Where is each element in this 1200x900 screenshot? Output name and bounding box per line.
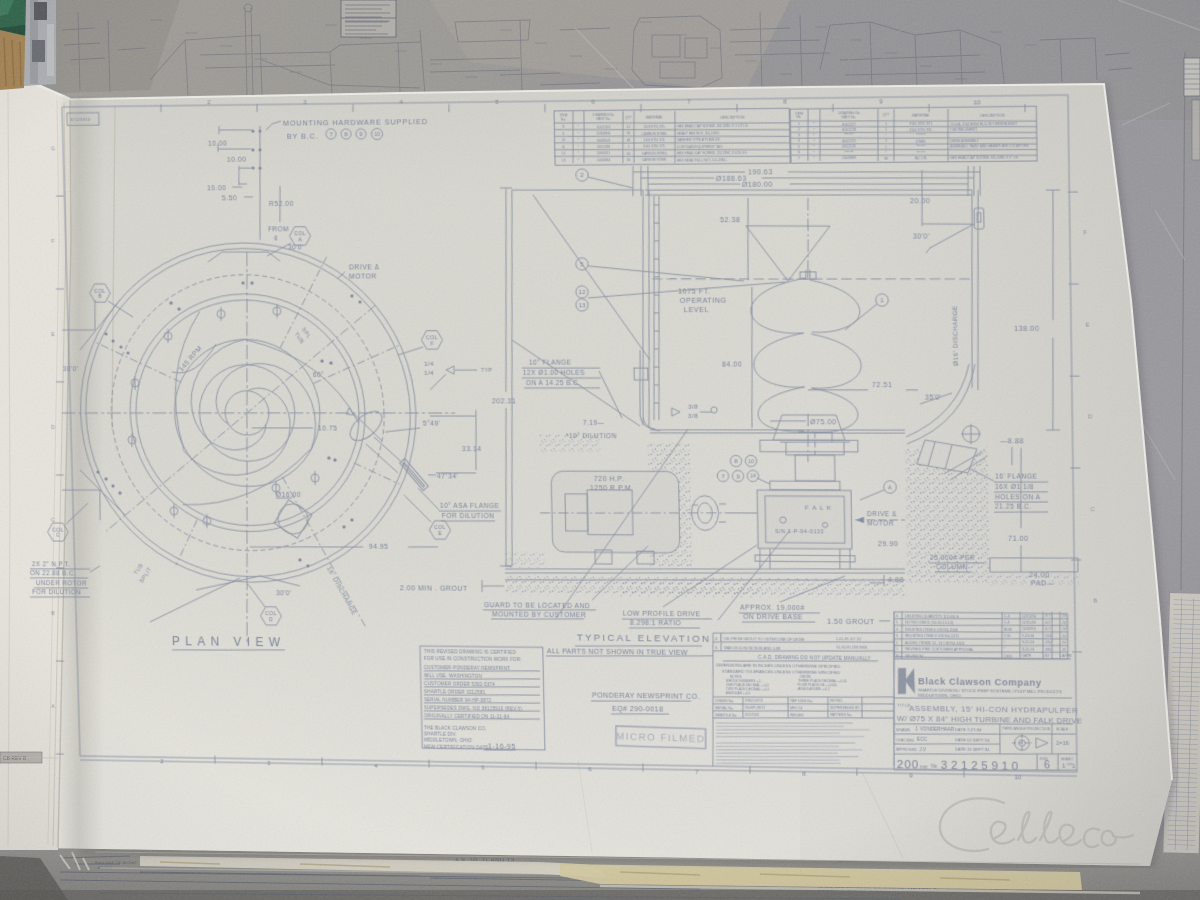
svg-text:9: 9	[879, 100, 883, 106]
svg-text:DRIVE ASSEMBLY.: DRIVE ASSEMBLY.	[950, 139, 980, 144]
svg-text:SUPERSEDED BY: SUPERSEDED BY	[830, 706, 861, 711]
svg-text:1009898: 1009898	[842, 156, 856, 160]
svg-text:9-23-94: 9-23-94	[1022, 634, 1035, 638]
svg-text:Ø16' DISCHARGE: Ø16' DISCHARGE	[952, 305, 960, 366]
svg-text:No.: No.	[796, 115, 801, 119]
svg-text:4002225: 4002225	[842, 139, 856, 143]
svg-text:WAS 28.10 NOW 28.80 AND 4.88: WAS 28.10 NOW 28.80 AND 4.88	[724, 646, 780, 651]
svg-text:10: 10	[374, 132, 380, 138]
svg-text:ADDED ITEMS 12, 13 CN#94-1301: ADDED ITEMS 12, 13 CN#94-1301	[905, 641, 965, 646]
svg-text:ASSEMBLY, PAINT AND NAMEPLATE: ASSEMBLY, PAINT AND NAMEPLATE LOCATIONS.	[950, 144, 1030, 149]
svg-text:12: 12	[562, 152, 566, 156]
svg-text:10.00: 10.00	[207, 185, 227, 192]
svg-text:5302-5374: 5302-5374	[745, 699, 763, 703]
svg-text:C: C	[1091, 507, 1095, 513]
svg-text:SERIAL No.: SERIAL No.	[715, 706, 734, 710]
svg-text:FOR DILUTION: FOR DILUTION	[32, 589, 81, 596]
svg-text:*: *	[578, 132, 580, 136]
svg-text:18-8 STN. STL: 18-8 STN. STL	[644, 138, 666, 142]
svg-text:1: 1	[885, 139, 887, 143]
svg-text:30'0': 30'0'	[288, 245, 304, 252]
svg-text:HOLES ON A: HOLES ON A	[995, 494, 1041, 502]
svg-text:TYPICAL ELEVATION: TYPICAL ELEVATION	[577, 633, 712, 646]
svg-text:I.M. FROM GROUT TO OUTER LINE: I.M. FROM GROUT TO OUTER LINE OF DRIVE	[724, 637, 805, 642]
svg-text:4002224: 4002224	[842, 145, 856, 149]
svg-text:3212581: 3212581	[745, 713, 760, 717]
svg-text:F: F	[51, 239, 55, 245]
svg-text:DRIVE &: DRIVE &	[349, 265, 380, 272]
svg-text:4: 4	[715, 636, 718, 641]
svg-text:1=16: 1=16	[1056, 741, 1069, 747]
svg-text:7.19—: 7.19—	[583, 420, 605, 427]
svg-text:12: 12	[626, 125, 630, 129]
svg-text:—8.88: —8.88	[1000, 438, 1024, 445]
svg-text:5: 5	[495, 100, 499, 106]
svg-text:6: 6	[798, 151, 800, 155]
svg-text:DESCRIPTION: DESCRIPTION	[720, 115, 745, 119]
svg-text:CUSTOMER ORDER 5302-5374: CUSTOMER ORDER 5302-5374	[424, 681, 496, 687]
svg-text:9: 9	[562, 132, 564, 136]
svg-text:CUSTOMER-PONDERAY NEWSPRINT: CUSTOMER-PONDERAY NEWSPRINT	[424, 665, 510, 671]
svg-text:5: 5	[896, 621, 898, 625]
svg-text:HEX HEAD CAP SCREW- 3/4-10NC X: HEX HEAD CAP SCREW- 3/4-10NC X 5" LG.	[950, 156, 1019, 161]
svg-text:11: 11	[562, 145, 566, 149]
svg-text:*: *	[813, 151, 815, 155]
svg-text:CARBON STEEL: CARBON STEEL	[642, 151, 668, 155]
svg-text:1: 1	[885, 145, 887, 149]
svg-text:ON A 14.25 B.C.: ON A 14.25 B.C.	[526, 380, 581, 387]
svg-text:2: 2	[896, 641, 898, 645]
svg-text:INC OR.: INC OR.	[915, 156, 928, 160]
svg-text:Ø75.00: Ø75.00	[810, 419, 837, 426]
svg-text:SHARTLE ORDER 3212581: SHARTLE ORDER 3212581	[424, 689, 486, 695]
svg-text:6: 6	[1044, 760, 1051, 771]
svg-text:11/20/94: 11/20/94	[1022, 627, 1036, 631]
svg-text:A: A	[51, 704, 55, 710]
svg-text:JLT: JLT	[1045, 627, 1051, 631]
svg-text:REF DWG No.: REF DWG No.	[790, 699, 813, 703]
svg-text:9: 9	[359, 132, 363, 138]
svg-text:ON DRIVE BASE: ON DRIVE BASE	[743, 614, 803, 622]
svg-text:8: 8	[562, 125, 564, 129]
svg-text:36: 36	[626, 131, 630, 135]
svg-text:10: 10	[973, 100, 981, 106]
svg-text:SCALE: SCALE	[1056, 727, 1069, 731]
svg-text:*******: *******	[916, 151, 926, 155]
svg-text:REVISED PER CUSTOMER APPROVAL: REVISED PER CUSTOMER APPROVAL	[905, 647, 974, 652]
svg-text:18-8 STN. STL: 18-8 STN. STL	[643, 125, 665, 129]
svg-text:32125910: 32125910	[70, 117, 91, 122]
svg-text:B: B	[98, 294, 102, 300]
svg-text:No.: No.	[931, 764, 938, 769]
svg-text:ALL PARTS NOT SHOWN IN TRUE VI: ALL PARTS NOT SHOWN IN TRUE VIEW	[547, 648, 688, 657]
svg-text:PATTERN No: PATTERN No	[830, 713, 852, 717]
svg-text:20.00: 20.00	[910, 198, 931, 205]
svg-text:21.25 B.C.: 21.25 B.C.	[995, 504, 1032, 511]
svg-text:94.95: 94.95	[369, 544, 389, 551]
svg-text:MICRO FILMED: MICRO FILMED	[616, 731, 705, 745]
svg-text:DELETED ITEM 6 CN#94-1508: DELETED ITEM 6 CN#94-1508	[905, 627, 958, 632]
svg-text:MIDDLETOWN, OHIO: MIDDLETOWN, OHIO	[424, 737, 473, 743]
svg-text:75 DIA. X 84 HIGH HI-CON TURBI: 75 DIA. X 84 HIGH HI-CON TURBINE ASSY.	[950, 121, 1018, 126]
svg-text:C10: C10	[1004, 634, 1011, 638]
svg-text:*: *	[885, 134, 887, 138]
svg-text:JV: JV	[1062, 614, 1067, 618]
svg-text:FOR USE IN CONSTRUCTION WORK F: FOR USE IN CONSTRUCTION WORK FOR:	[424, 656, 522, 662]
svg-text:*: *	[813, 128, 815, 132]
svg-text:60°: 60°	[313, 371, 325, 379]
svg-text:*******: *******	[844, 151, 854, 155]
svg-text:PLAN VIEW: PLAN VIEW	[172, 634, 286, 649]
svg-text:F: F	[1083, 231, 1087, 237]
svg-text:3: 3	[267, 761, 271, 767]
svg-text:JSV: JSV	[1045, 647, 1052, 651]
svg-text:6: 6	[896, 614, 898, 618]
svg-text:*: *	[813, 122, 815, 126]
svg-text:*: *	[578, 158, 580, 162]
svg-text:JSV: JSV	[1045, 641, 1052, 645]
svg-text:DATE 02 SEPT 94: DATE 02 SEPT 94	[955, 737, 990, 743]
svg-text:30'0': 30'0'	[913, 234, 930, 241]
svg-text:30'0': 30'0'	[276, 590, 292, 597]
svg-text:HEX HEAD FULL NUT- 1/2-13NC.: HEX HEAD FULL NUT- 1/2-13NC.	[677, 158, 728, 163]
svg-text:LEVEL: LEVEL	[684, 307, 709, 314]
svg-text:G: G	[51, 146, 55, 152]
svg-text:4002228: 4002228	[842, 128, 856, 132]
svg-text:F A L K: F A L K	[805, 506, 832, 512]
svg-text:4: 4	[798, 139, 800, 143]
svg-text:1001703: 1001703	[597, 125, 611, 129]
svg-text:84.00: 84.00	[722, 362, 742, 369]
svg-text:JV: JV	[1062, 641, 1067, 645]
svg-text:36: 36	[884, 156, 888, 160]
svg-text:C-4: C-4	[1004, 621, 1010, 625]
svg-text:16' FLANGE: 16' FLANGE	[995, 474, 1038, 481]
svg-text:3: 3	[896, 634, 898, 638]
svg-text:NEW CERTIFICATION DATE: NEW CERTIFICATION DATE	[424, 745, 489, 751]
svg-text:1: 1	[880, 298, 884, 304]
svg-text:200: 200	[897, 759, 920, 772]
svg-text:3: 3	[303, 100, 307, 106]
svg-text:8: 8	[783, 100, 787, 106]
svg-text:F: F	[430, 341, 434, 347]
svg-text:3: 3	[798, 134, 800, 138]
svg-text:10° FLANGE: 10° FLANGE	[529, 359, 572, 367]
svg-text:316L STN. STL: 316L STN. STL	[909, 128, 932, 132]
svg-text:12/15/94: 12/15/94	[1022, 614, 1036, 618]
svg-text:UNDER ROTOR: UNDER ROTOR	[36, 580, 87, 587]
svg-text:12: 12	[579, 290, 587, 296]
svg-text:A: A	[298, 237, 302, 243]
svg-text:E: E	[1086, 323, 1090, 329]
svg-text:BCM: BCM	[1004, 627, 1012, 631]
svg-text:8: 8	[734, 459, 738, 465]
svg-text:*: *	[578, 125, 580, 129]
svg-text:2: 2	[798, 128, 800, 132]
svg-text:C: C	[56, 533, 60, 539]
svg-text:1: 1	[798, 122, 800, 126]
svg-text:30: 30	[626, 152, 630, 156]
svg-text:8.298:1 RATIO: 8.298:1 RATIO	[630, 620, 681, 628]
svg-text:71.00: 71.00	[1008, 536, 1029, 543]
svg-text:DRIVE &: DRIVE &	[867, 511, 898, 518]
svg-text:No.: No.	[896, 654, 902, 658]
svg-text:RELISTED ITEM 3 CN#94-1375: RELISTED ITEM 3 CN#94-1375	[905, 634, 959, 639]
svg-text:JV: JV	[1062, 647, 1067, 651]
svg-text:12/15/94: 12/15/94	[1022, 621, 1036, 625]
svg-text:A: A	[888, 485, 892, 491]
svg-text:2X 2" N.P.T.: 2X 2" N.P.T.	[32, 561, 71, 568]
svg-text:*: *	[813, 156, 815, 160]
svg-text:1000411: 1000411	[597, 151, 611, 155]
svg-text:D: D	[51, 425, 55, 431]
svg-text:BY B.C.: BY B.C.	[287, 133, 319, 142]
svg-text:*: *	[1004, 647, 1006, 651]
svg-text:1.50 GROUT: 1.50 GROUT	[827, 619, 875, 627]
svg-text:JV: JV	[1062, 621, 1067, 625]
svg-text:FROM: FROM	[268, 226, 289, 233]
svg-text:MIDDLETOWN, OHIO: MIDDLETOWN, OHIO	[918, 693, 961, 699]
svg-text:PART No.: PART No.	[596, 117, 611, 121]
svg-text:*******: *******	[916, 145, 926, 149]
svg-text:*: *	[1004, 641, 1006, 645]
svg-text:720 H.P.: 720 H.P.	[594, 476, 624, 483]
svg-text:9-12-94: 9-12-94	[1022, 641, 1035, 645]
svg-text:52.38: 52.38	[720, 217, 740, 224]
svg-text:HEX HEAD CAP SCREW- 1/2-13NC X: HEX HEAD CAP SCREW- 1/2-13NC X 4.50 LG	[677, 151, 747, 156]
svg-text:8: 8	[802, 771, 806, 777]
svg-text:5: 5	[798, 145, 800, 149]
svg-text:THIS REVISED DRAWING IS CERTIF: THIS REVISED DRAWING IS CERTIFIED	[424, 649, 517, 655]
svg-text:Ø180.00: Ø180.00	[742, 182, 773, 190]
svg-text:10: 10	[748, 459, 754, 465]
svg-text:NOTED DIM.S (34.30,13.14): NOTED DIM.S (34.30,13.14)	[905, 621, 953, 626]
svg-text:10.00: 10.00	[227, 157, 247, 164]
svg-text:1250 R.P.M.: 1250 R.P.M.	[590, 485, 634, 492]
svg-text:mm: mm	[920, 764, 928, 769]
svg-text:COSTIGAN EQUIPMENT TAG.: COSTIGAN EQUIPMENT TAG.	[677, 144, 723, 149]
svg-text:MOUNTED BY CUSTOMER: MOUNTED BY CUSTOMER	[492, 611, 586, 619]
svg-text:MOUNTING HARDWARE SUPPLIED: MOUNTING HARDWARE SUPPLIED	[283, 118, 428, 128]
svg-text:E: E	[438, 531, 442, 537]
svg-text:SHEET: SHEET	[1061, 757, 1073, 761]
svg-text:APPR: APPR	[1062, 654, 1072, 658]
svg-text:1/4: 1/4	[424, 361, 434, 368]
svg-text:*: *	[578, 138, 580, 142]
svg-text:WEIGHT: WEIGHT	[790, 713, 804, 717]
svg-text:JV: JV	[1062, 634, 1067, 638]
svg-text:*******: *******	[844, 133, 855, 137]
svg-text:ON 22.88 B.C.: ON 22.88 B.C.	[30, 570, 76, 577]
svg-text:16X Ø1 1/8: 16X Ø1 1/8	[995, 484, 1034, 491]
svg-text:8: 8	[344, 132, 348, 138]
svg-text:1001283: 1001283	[597, 145, 611, 149]
svg-text:32125910: 32125910	[941, 760, 1022, 774]
svg-text:SUPERSEDES DWG. NO 38125910 (R: SUPERSEDES DWG. NO 38125910 (REV.5)	[424, 705, 522, 711]
svg-text:HEX HEAD CAP SCREW- 3/4-10NC X: HEX HEAD CAP SCREW- 3/4-10NC X 1 1/2 LG.	[677, 124, 749, 129]
svg-text:DATE 7-27-94: DATE 7-27-94	[955, 727, 982, 733]
svg-text:C.A.D. DRAWING DO NOT UPDATE M: C.A.D. DRAWING DO NOT UPDATE MANUALLY	[758, 655, 871, 661]
svg-text:*10° DILUTION: *10° DILUTION	[566, 432, 617, 440]
svg-text:ANGULAR MIN +-0.2: ANGULAR MIN +-0.2	[798, 687, 830, 692]
svg-text:PART No.: PART No.	[842, 115, 857, 119]
svg-text:1: 1	[896, 647, 898, 651]
svg-text:DELETED QUANTITY (13.00) &: DELETED QUANTITY (13.00) &	[905, 614, 960, 619]
svg-text:*: *	[813, 134, 815, 138]
svg-text:*: *	[813, 145, 815, 149]
svg-text:DATE 13 SEPT 94: DATE 13 SEPT 94	[955, 747, 990, 753]
svg-text:7: 7	[687, 100, 691, 106]
svg-text:E: E	[51, 332, 55, 338]
svg-text:MOTOR: MOTOR	[349, 274, 377, 281]
svg-text:APPROVED: APPROVED	[896, 748, 917, 752]
svg-text:2: 2	[580, 173, 584, 179]
svg-text:DESCRIPTION: DESCRIPTION	[980, 113, 1005, 117]
svg-text:1008509: 1008509	[597, 138, 611, 142]
svg-text:SERIAL NUMBER 94-HP-3872: SERIAL NUMBER 94-HP-3872	[424, 697, 492, 703]
svg-text:138.00: 138.00	[1014, 326, 1039, 333]
svg-text:1034806: 1034806	[597, 131, 611, 135]
svg-text:3/8: 3/8	[688, 404, 699, 411]
svg-text:LOW PROFILE DRIVE: LOW PROFILE DRIVE	[623, 611, 701, 619]
svg-text:30: 30	[626, 158, 630, 162]
svg-text:FOR DILUTION: FOR DILUTION	[442, 513, 495, 520]
svg-text:1: 1	[885, 122, 887, 126]
svg-text:BY: BY	[1045, 654, 1051, 658]
svg-text:STEEL: STEEL	[916, 139, 927, 143]
svg-text:7: 7	[329, 132, 333, 138]
svg-text:REVISION: REVISION	[905, 654, 924, 658]
svg-text:DRAWN: DRAWN	[896, 728, 911, 732]
svg-text:JVS: JVS	[1045, 634, 1052, 638]
svg-text:GUARD TO BE LOCATED AND: GUARD TO BE LOCATED AND	[484, 602, 590, 610]
svg-text:1: 1	[1072, 764, 1076, 770]
svg-text:THIRD ANGLE PROJECTION: THIRD ANGLE PROJECTION	[1002, 727, 1051, 732]
svg-text:1: 1	[627, 145, 629, 149]
svg-text:14: 14	[750, 474, 756, 480]
svg-text:10° ASA FLANGE: 10° ASA FLANGE	[440, 502, 500, 510]
svg-text:316L STN. STL: 316L STN. STL	[909, 122, 932, 126]
svg-text:7: 7	[798, 156, 800, 160]
svg-text:5°49': 5°49'	[423, 420, 441, 428]
svg-text:No.: No.	[561, 117, 566, 121]
svg-text:MFD 94: MFD 94	[790, 706, 803, 710]
svg-text:3/8: 3/8	[688, 413, 699, 420]
svg-text:33.14: 33.14	[462, 446, 482, 453]
svg-text:TYP: TYP	[481, 368, 493, 374]
svg-text:JLT: JLT	[1045, 621, 1051, 625]
svg-text:1: 1	[1062, 764, 1066, 770]
svg-text:TUB WELDMENT.: TUB WELDMENT.	[950, 128, 978, 132]
svg-text:ECC: ECC	[917, 737, 928, 742]
svg-text:11-16-95 JSV ESS: 11-16-95 JSV ESS	[836, 646, 868, 650]
svg-text:7: 7	[721, 474, 725, 480]
svg-text:J. VONDERHAAR: J. VONDERHAAR	[915, 727, 955, 733]
svg-text:PONDERAY NEWSPRINT CO.: PONDERAY NEWSPRINT CO.	[592, 693, 700, 702]
svg-text:Black Clawson Company: Black Clawson Company	[918, 676, 1042, 688]
svg-text:1: 1	[885, 128, 887, 132]
svg-text:*: *	[578, 152, 580, 156]
svg-text:ORIGINALLY CERTIFIED ON 11-21-: ORIGINALLY CERTIFIED ON 11-21-94	[424, 713, 510, 719]
svg-text:9: 9	[736, 474, 740, 480]
svg-text:MATERIAL: MATERIAL	[912, 113, 930, 117]
svg-text:JLT: JLT	[1045, 614, 1051, 618]
svg-text:JV: JV	[1062, 627, 1067, 631]
svg-text:316L STN. STL: 316L STN. STL	[643, 145, 666, 149]
svg-text:MOTOR: MOTOR	[867, 520, 894, 527]
svg-text:DATE: DATE	[1022, 654, 1032, 658]
svg-text:QTY: QTY	[882, 113, 890, 117]
svg-text:*: *	[813, 139, 815, 143]
svg-text:12X Ø1.00 HOLES: 12X Ø1.00 HOLES	[523, 370, 585, 377]
svg-text:5.50: 5.50	[222, 195, 237, 202]
svg-text:30'0': 30'0'	[63, 366, 79, 373]
svg-text:47°34': 47°34'	[437, 472, 459, 480]
svg-text:9: 9	[909, 773, 913, 779]
svg-text:2.00 MIN . GROUT: 2.00 MIN . GROUT	[400, 585, 468, 593]
svg-text:13: 13	[561, 158, 565, 162]
svg-text:4: 4	[896, 627, 898, 631]
svg-text:D: D	[1088, 415, 1092, 421]
svg-text:1036834: 1036834	[597, 158, 611, 162]
svg-text:SHARTLE DIV.: SHARTLE DIV.	[424, 731, 457, 737]
svg-text:667061: 667061	[830, 699, 843, 703]
svg-text:13: 13	[579, 303, 587, 309]
svg-text:ANGULAR +-0.5: ANGULAR +-0.5	[726, 691, 751, 695]
svg-text:CHG: CHG	[1004, 654, 1012, 658]
svg-text:16' DISCHARGE: 16' DISCHARGE	[325, 566, 358, 617]
svg-text:WASHER TYPE A PLAIN 3/4.: WASHER TYPE A PLAIN 3/4.	[677, 138, 721, 143]
svg-text:APPROX. 19,000#: APPROX. 19,000#	[740, 605, 805, 613]
svg-text:10: 10	[561, 138, 565, 142]
svg-text:R52.00: R52.00	[269, 201, 294, 208]
svg-text:B: B	[51, 611, 55, 617]
svg-text:202.31: 202.31	[492, 398, 516, 405]
svg-text:SHARTLE No: SHARTLE No	[715, 713, 737, 717]
svg-text:*: *	[885, 151, 887, 155]
svg-text:CHECKED: CHECKED	[896, 738, 915, 742]
svg-text:C-4: C-4	[1004, 614, 1010, 618]
svg-text:¢: ¢	[274, 236, 278, 243]
svg-text:2: 2	[160, 760, 164, 766]
svg-text:THE BLACK CLAWSON CO.: THE BLACK CLAWSON CO.	[424, 725, 487, 731]
svg-text:29.90: 29.90	[878, 541, 899, 548]
svg-text:D: D	[269, 617, 273, 623]
svg-text:5: 5	[715, 645, 718, 650]
svg-text:QTY: QTY	[625, 115, 633, 119]
svg-text:B: B	[1093, 599, 1097, 605]
svg-text:MILL USE. WASHINGTON: MILL USE. WASHINGTON	[424, 673, 482, 679]
svg-text:*: *	[578, 145, 580, 149]
svg-text:4002227: 4002227	[842, 122, 856, 126]
svg-text:10.75: 10.75	[318, 426, 338, 433]
svg-text:ORDER No.: ORDER No.	[715, 699, 734, 703]
svg-text:CARBON STEEL: CARBON STEEL	[642, 131, 668, 135]
svg-text:EQ# 290-0018: EQ# 290-0018	[612, 706, 664, 714]
svg-text:1/4: 1/4	[424, 370, 434, 377]
svg-text:8-22-94: 8-22-94	[1022, 647, 1035, 651]
svg-text:10: 10	[1014, 775, 1022, 781]
svg-text:94-HP-3872: 94-HP-3872	[745, 706, 765, 710]
svg-text:72.51: 72.51	[872, 382, 893, 389]
svg-text:OPERATING: OPERATING	[680, 298, 727, 305]
svg-text:1-11-95 JLT JV: 1-11-95 JLT JV	[836, 637, 862, 641]
svg-text:HEAVY HEX NUT- 3/4-10NC.: HEAVY HEX NUT- 3/4-10NC.	[677, 131, 720, 136]
svg-text:CARBON STEEL: CARBON STEEL	[642, 158, 668, 162]
svg-text:*******: *******	[916, 133, 926, 137]
svg-text:MATERIAL: MATERIAL	[646, 115, 663, 119]
svg-text:S/N 1-P-94-0133: S/N 1-P-94-0133	[775, 529, 824, 535]
